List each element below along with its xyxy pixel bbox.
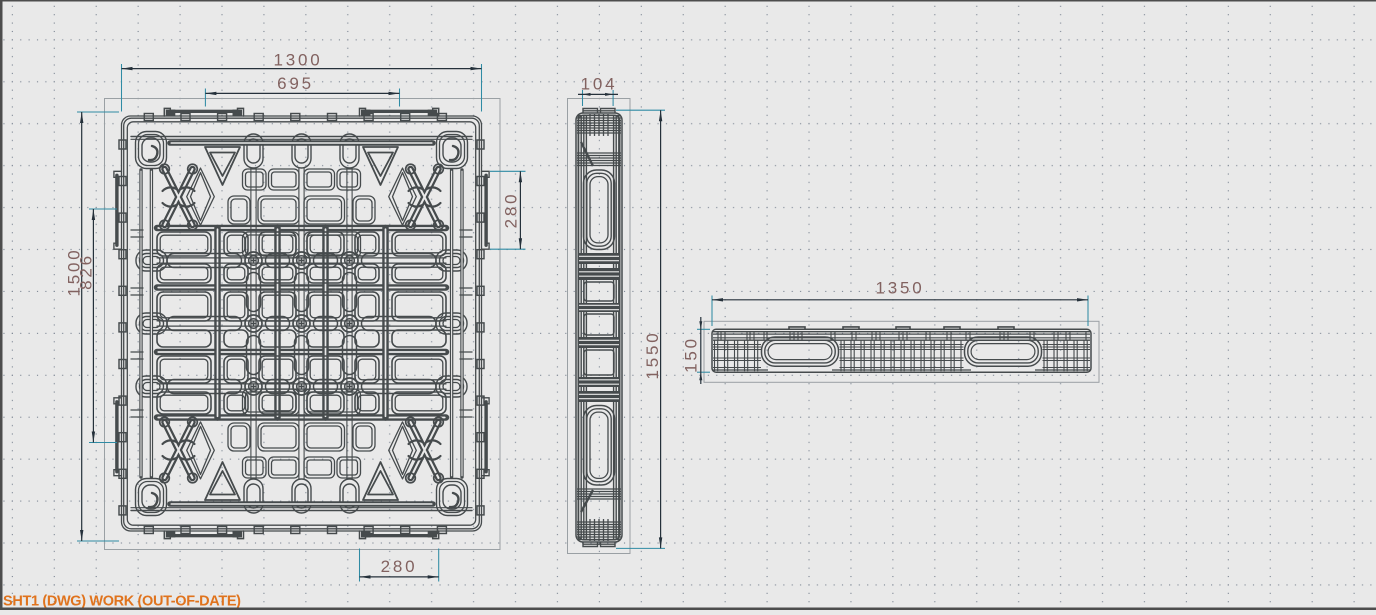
svg-text:280: 280: [381, 557, 418, 576]
svg-text:150: 150: [682, 336, 701, 373]
svg-text:826: 826: [77, 253, 96, 290]
svg-text:695: 695: [277, 74, 314, 93]
svg-text:104: 104: [581, 75, 618, 94]
svg-text:280: 280: [502, 192, 521, 229]
svg-text:SHT1 (DWG) WORK (OUT-OF-DATE): SHT1 (DWG) WORK (OUT-OF-DATE): [3, 594, 241, 610]
svg-text:1550: 1550: [643, 330, 662, 379]
svg-text:1300: 1300: [273, 51, 322, 70]
svg-text:1350: 1350: [875, 279, 924, 298]
